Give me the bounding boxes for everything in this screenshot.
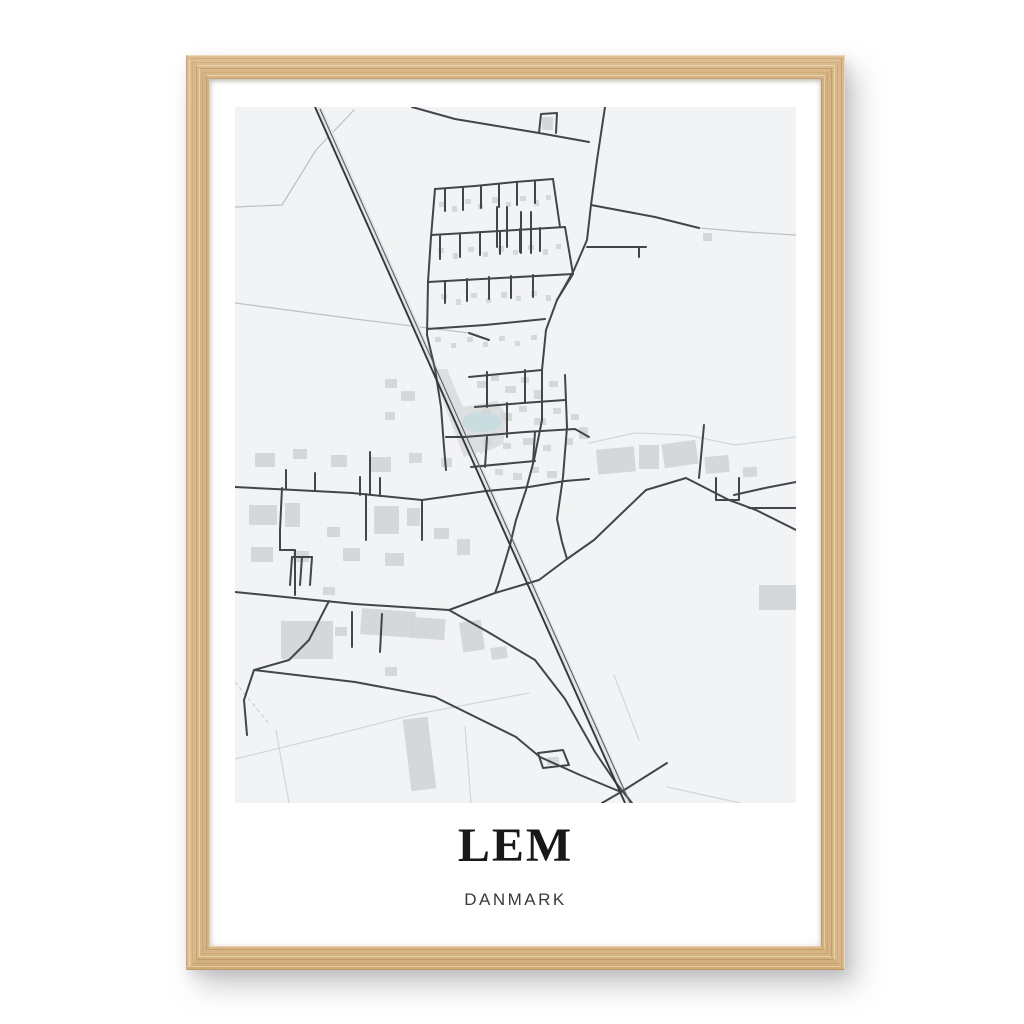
product-photo: LEM DANMARK	[0, 0, 1024, 1024]
frame-bar-bottom	[186, 946, 845, 970]
map-print	[235, 107, 796, 803]
poster-subtitle: DANMARK	[210, 890, 821, 909]
poster-title: LEM	[210, 820, 821, 872]
frame-bar-left	[186, 55, 210, 970]
frame-bar-right	[821, 55, 845, 970]
frame-bar-top	[186, 55, 845, 79]
poster-mat: LEM DANMARK	[210, 79, 821, 946]
city-map	[235, 107, 796, 803]
poster-frame: LEM DANMARK	[186, 55, 845, 970]
